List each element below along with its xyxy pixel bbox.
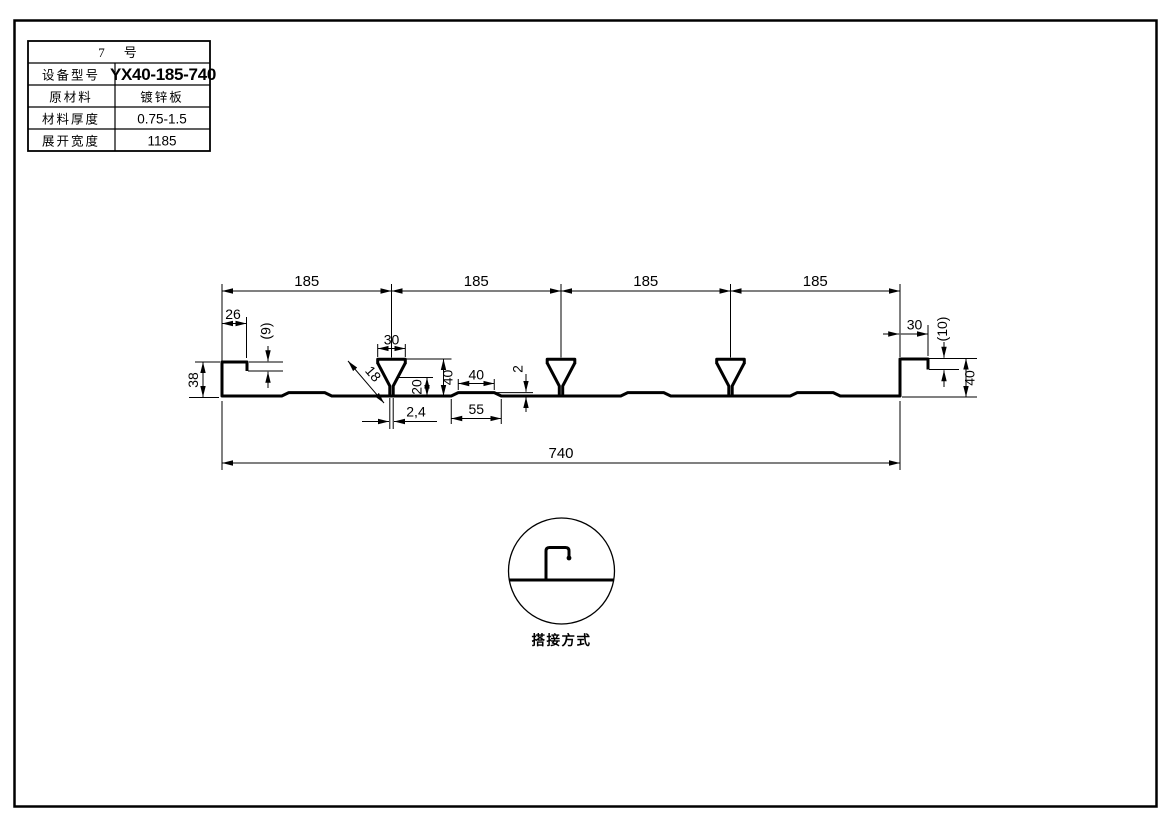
dim-stiffener-top: 40 <box>468 367 484 383</box>
detail-hook-tip <box>567 556 572 561</box>
spec-value-material: 镀锌板 <box>140 90 184 105</box>
dim-stiffener-base: 55 <box>468 401 484 417</box>
dim-stiffener-height: 2 <box>510 365 526 373</box>
spec-label-thickness: 材料厚度 <box>42 112 100 127</box>
spec-value-model: YX40-185-740 <box>110 65 216 84</box>
dim-right-hook: (10) <box>934 317 950 342</box>
dim-left-hook: (9) <box>258 322 274 339</box>
detail-circle <box>509 518 615 624</box>
rib-2 <box>547 359 575 396</box>
dimensions: 185 185 185 185 740 26 (9) 38 30 18 <box>185 273 978 470</box>
lap-detail-caption: 搭接方式 <box>532 632 592 648</box>
sheet-border <box>15 21 1157 807</box>
lap-joint-detail: 搭接方式 <box>509 518 615 648</box>
spec-value-thickness: 0.75-1.5 <box>137 112 187 127</box>
dim-total-width: 740 <box>548 445 573 462</box>
dim-pitch-2: 185 <box>464 273 489 290</box>
drawing-sheet: 7 号 设备型号 YX40-185-740 原材料 镀锌板 材料厚度 0.75-… <box>0 0 1169 827</box>
dim-rib-stem-gap: 2,4 <box>406 404 426 420</box>
table-header: 7 号 <box>98 45 140 60</box>
spec-label-coil-width: 展开宽度 <box>42 134 100 149</box>
dim-pitch-3: 185 <box>633 273 658 290</box>
spec-label-model: 设备型号 <box>42 68 100 83</box>
spec-table: 7 号 设备型号 YX40-185-740 原材料 镀锌板 材料厚度 0.75-… <box>28 41 216 151</box>
dim-left-height: 38 <box>185 372 201 388</box>
dim-rib-mid-height: 20 <box>409 379 425 395</box>
cad-drawing: 7 号 设备型号 YX40-185-740 原材料 镀锌板 材料厚度 0.75-… <box>0 0 1169 827</box>
dim-rib-top-width: 30 <box>384 332 400 348</box>
dim-right-height: 40 <box>962 370 978 386</box>
profile-section <box>222 359 928 396</box>
spec-label-material: 原材料 <box>49 91 93 105</box>
dim-left-flange: 26 <box>225 306 241 322</box>
spec-value-coil-width: 1185 <box>147 134 176 149</box>
rib-3 <box>717 359 745 396</box>
detail-seam-hook <box>546 548 569 581</box>
dim-pitch-1: 185 <box>294 273 319 290</box>
dim-right-flange: 30 <box>907 317 923 333</box>
dim-pitch-4: 185 <box>803 273 828 290</box>
dim-rib-height: 40 <box>440 370 456 386</box>
